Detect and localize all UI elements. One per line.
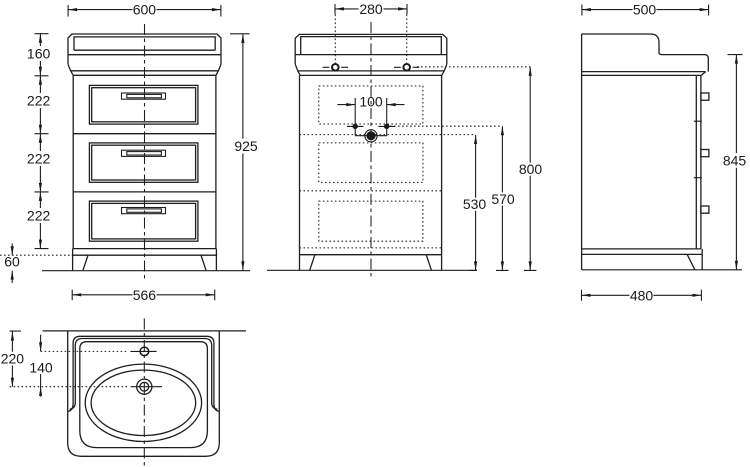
svg-text:800: 800 [519, 161, 543, 177]
svg-text:566: 566 [133, 287, 157, 303]
svg-text:60: 60 [4, 254, 20, 270]
svg-text:480: 480 [630, 287, 654, 303]
svg-text:220: 220 [1, 351, 25, 367]
svg-text:925: 925 [234, 138, 258, 154]
svg-text:160: 160 [27, 46, 51, 62]
svg-text:570: 570 [491, 191, 515, 207]
svg-text:222: 222 [27, 208, 51, 224]
svg-text:280: 280 [359, 1, 383, 17]
svg-text:845: 845 [723, 152, 747, 168]
svg-text:222: 222 [27, 151, 51, 167]
svg-text:500: 500 [633, 2, 657, 18]
svg-text:222: 222 [27, 93, 51, 109]
svg-text:530: 530 [463, 196, 487, 212]
svg-text:600: 600 [133, 2, 157, 18]
svg-text:140: 140 [29, 360, 53, 376]
svg-text:100: 100 [359, 93, 383, 109]
